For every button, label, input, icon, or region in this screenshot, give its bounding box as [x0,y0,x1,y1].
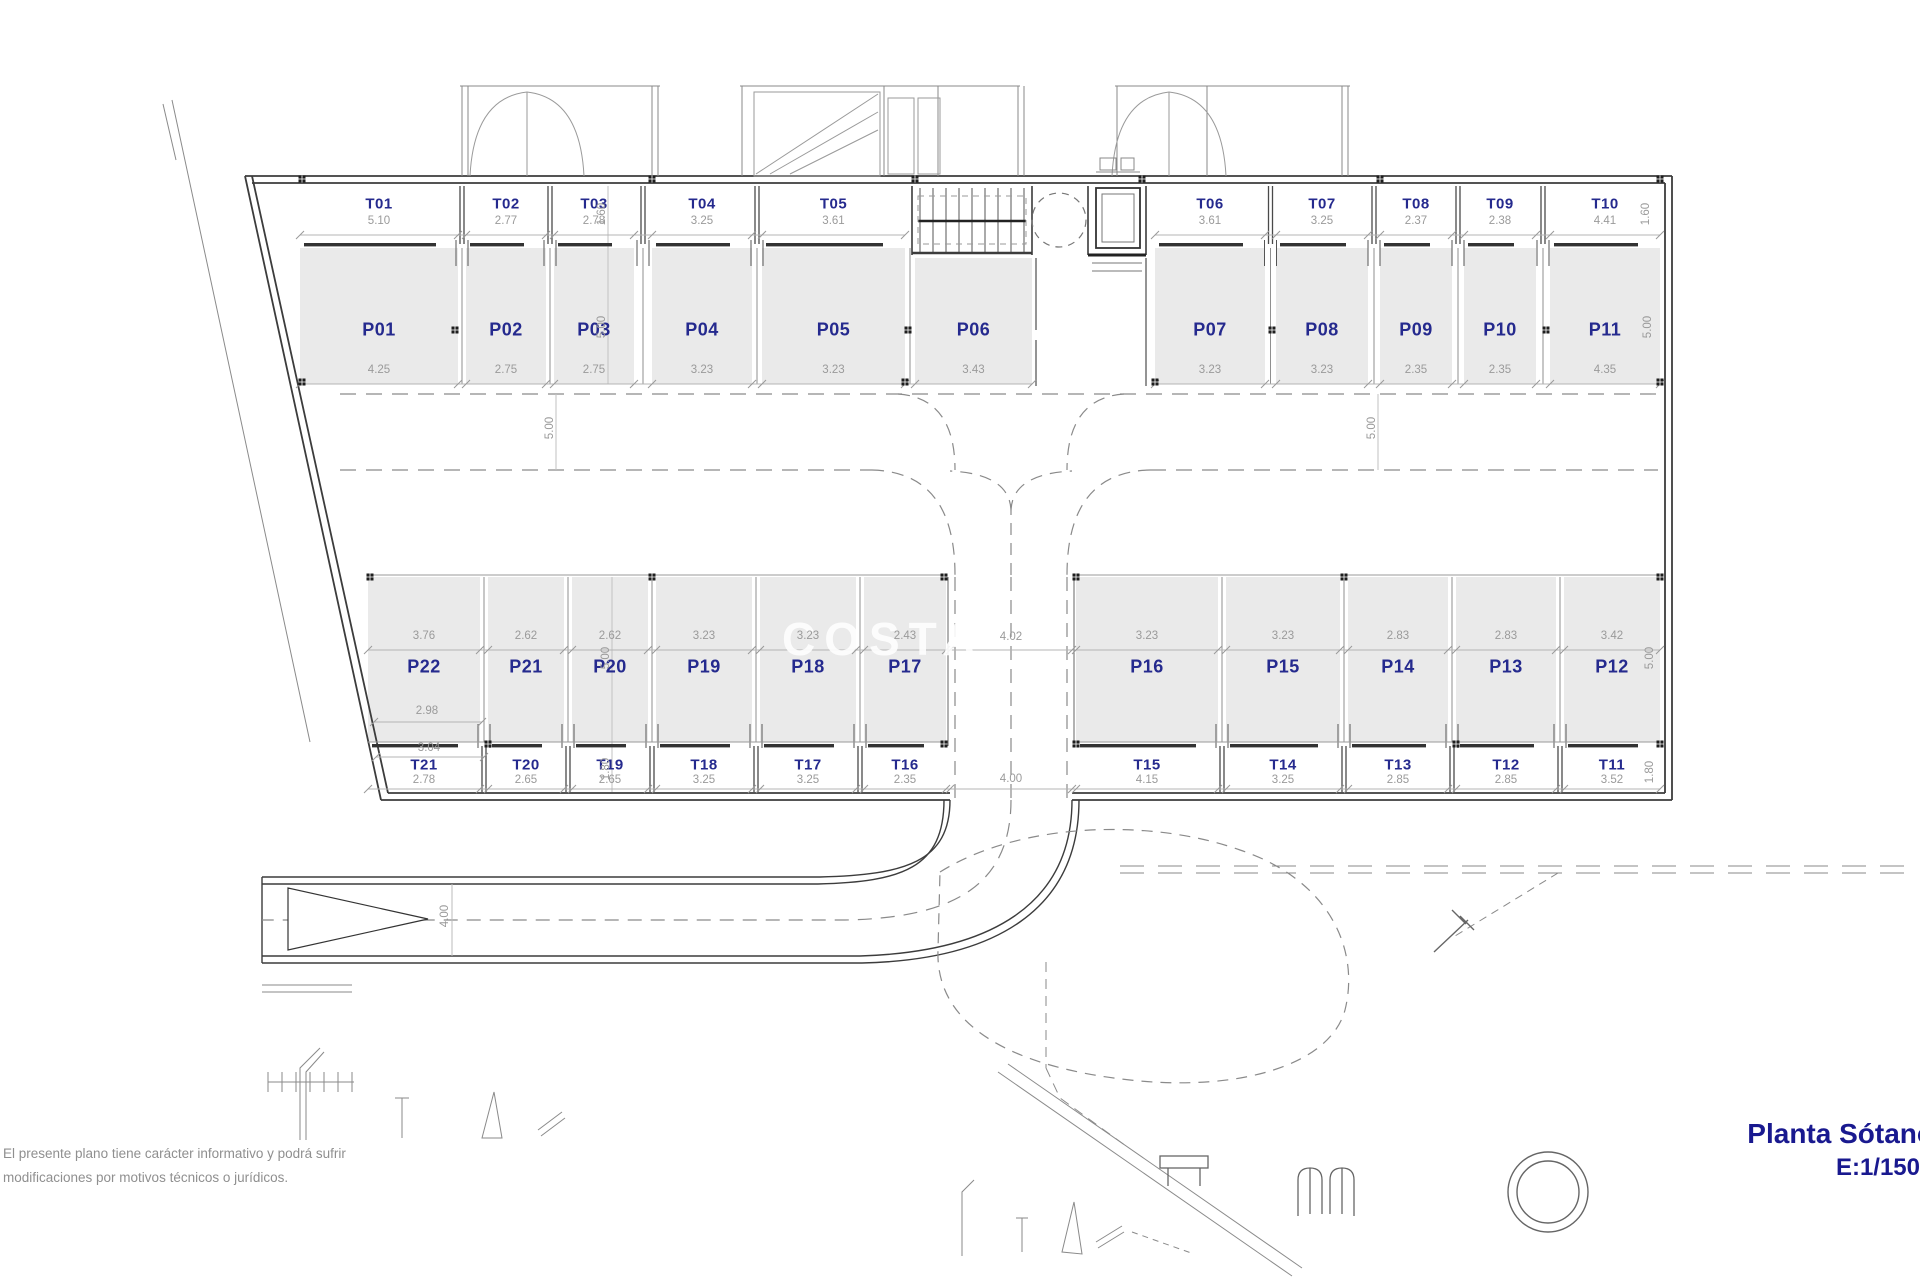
parking-space-p02 [466,248,546,384]
door-threshold [764,744,834,747]
floorplan-canvas: T015.10T022.77T032.78T043.25T053.61T063.… [0,0,1920,1280]
parking-space-p06 [915,258,1032,384]
scale-label: E:1/150 [1747,1154,1920,1182]
page-title: Planta Sótano [1747,1118,1920,1150]
aisle-markings [340,394,1658,575]
parking-space-p04 [652,248,752,384]
parking-space-p13 [1456,577,1556,742]
parking-space-p05 [762,248,905,384]
exterior-stair-icon [754,92,940,176]
parking-space-p08 [1276,248,1368,384]
site-decor [262,866,1912,1276]
parking-space-p19 [656,577,752,742]
door-threshold [492,744,542,747]
door-threshold [1468,243,1514,246]
door-threshold [660,744,730,747]
door-threshold [372,744,458,747]
ramp [948,577,1074,798]
parking-space-p16 [1076,577,1218,742]
title-block: Planta Sótano E:1/150 [1747,1118,1920,1182]
pool-outline [938,829,1349,1082]
door-threshold [558,243,612,246]
pool-ladder-icon [1298,1168,1354,1216]
disclaimer-line1: El presente plano tiene carácter informa… [3,1142,383,1166]
parking-space-p07 [1155,248,1265,384]
door-threshold [1554,243,1638,246]
turning-circle [1032,193,1086,247]
bench-icon [1160,1156,1208,1186]
door-threshold [1460,744,1534,747]
parking-space-p01 [300,248,458,384]
door-threshold [576,744,626,747]
elevator-icon [1096,158,1140,248]
parking-space-p15 [1226,577,1340,742]
door-threshold [1230,744,1318,747]
door-threshold [1159,243,1243,246]
parking-space-p11 [1550,248,1660,384]
parking-space-p21 [488,577,564,742]
ramp-arrow [288,888,428,950]
door-threshold [868,744,924,747]
door-threshold [766,243,883,246]
parking-space-p20 [572,577,648,742]
parking-space-p12 [1564,577,1660,742]
door-threshold [1080,744,1196,747]
disclaimer-line2: modificaciones por motivos técnicos o ju… [3,1166,383,1190]
disclaimer: El presente plano tiene carácter informa… [3,1142,383,1190]
parking-space-p03 [554,248,634,384]
parking-space-p22 [368,577,480,742]
parking-space-p10 [1464,248,1536,384]
door-threshold [1568,744,1638,747]
door-threshold [1280,243,1346,246]
shower-icon [1434,910,1474,952]
door-threshold [656,243,730,246]
door-threshold [1384,243,1430,246]
parking-space-p09 [1380,248,1452,384]
door-threshold [304,243,436,246]
watermark: COSTA [782,612,985,666]
parking-space-p14 [1348,577,1448,742]
road-centerline [262,800,1011,920]
door-fan-icon [470,92,1226,176]
jacuzzi-circle [1508,1152,1588,1232]
door-threshold [470,243,524,246]
property-line [1120,866,1912,873]
exit-road [262,800,1079,963]
door-threshold [1352,744,1426,747]
